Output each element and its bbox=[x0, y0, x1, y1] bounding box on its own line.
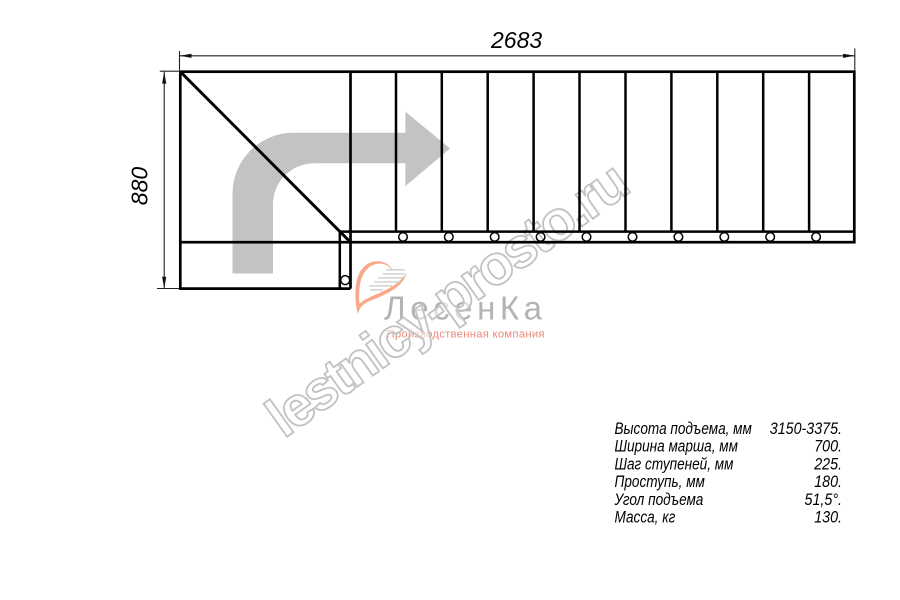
svg-text:Масса, кг: Масса, кг bbox=[615, 508, 676, 527]
svg-text:Высота подъема, мм: Высота подъема, мм bbox=[615, 420, 753, 439]
svg-text:Шаг ступеней, мм: Шаг ступеней, мм bbox=[615, 455, 734, 474]
svg-text:51,5°.: 51,5°. bbox=[805, 491, 842, 509]
svg-text:Ширина марша, мм: Ширина марша, мм bbox=[615, 437, 739, 456]
svg-text:130.: 130. bbox=[814, 509, 842, 527]
svg-text:2683: 2683 bbox=[490, 27, 542, 53]
svg-text:Угол подъема: Угол подъема bbox=[614, 490, 704, 509]
svg-text:700.: 700. bbox=[814, 438, 842, 456]
svg-text:225.: 225. bbox=[813, 455, 842, 473]
svg-text:180.: 180. bbox=[814, 473, 842, 491]
svg-text:3150-3375.: 3150-3375. bbox=[770, 420, 842, 438]
svg-text:Проступь, мм: Проступь, мм bbox=[615, 473, 706, 492]
svg-text:880: 880 bbox=[127, 167, 153, 206]
